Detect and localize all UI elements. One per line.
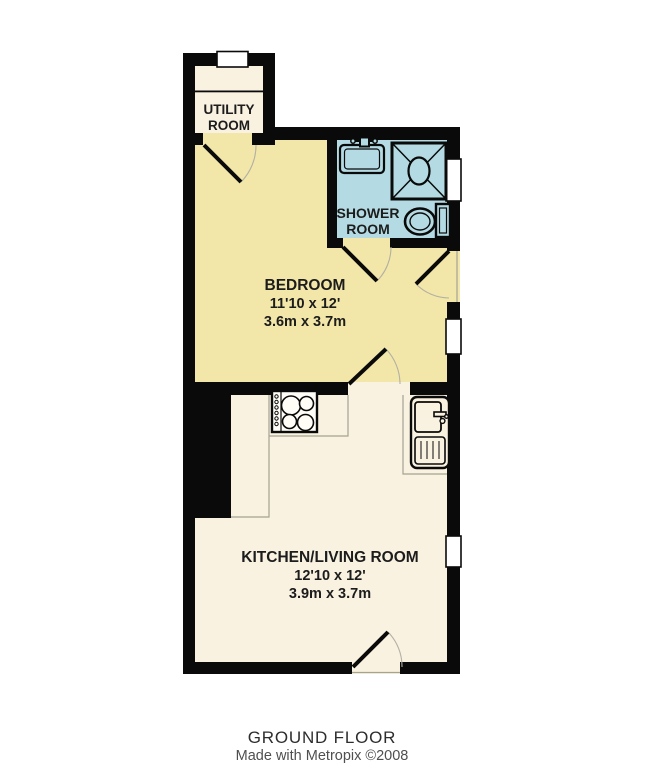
window-utility [217,52,248,68]
wall-bedroom-kitchen-east [410,382,447,395]
wall-shower-south-east [390,238,460,248]
kitchen-label: KITCHEN/LIVING ROOM [241,549,418,566]
floor-plan: UTILITY ROOM SHOWER ROOM BEDROOM 11'10 x… [0,0,645,767]
window-shower-room [446,159,461,201]
caption: GROUND FLOOR Made with Metropix ©2008 [236,728,409,764]
wall-shower-west [327,140,337,248]
wall-bottom [183,662,460,674]
window-kitchen [446,536,461,567]
kitchen-floor [195,395,447,662]
kitchen-dim-metric: 3.9m x 3.7m [289,586,371,602]
bedroom-label: BEDROOM [265,277,346,294]
bedroom-dim-metric: 3.6m x 3.7m [264,314,346,330]
opening-shower [343,238,390,248]
opening-utility [203,133,252,145]
utility-divider-line [195,91,263,93]
opening-entrance [447,251,460,302]
opening-bedroom-kitchen [348,382,410,395]
credit-line: Made with Metropix ©2008 [236,748,409,764]
utility-room-label-line1: UTILITY [204,102,255,117]
utility-room-label-line2: ROOM [208,118,250,133]
shower-cubicle [392,143,446,199]
wall-left [183,53,195,674]
bedroom-dim-imperial: 11'10 x 12' [270,296,341,312]
floorplan-page: UTILITY ROOM SHOWER ROOM BEDROOM 11'10 x… [0,0,645,767]
wall-shower-south-stub [327,238,343,248]
kitchen-sink [411,397,449,468]
kitchen-dim-imperial: 12'10 x 12' [294,568,365,584]
window-bedroom [446,319,461,354]
shower-room-label-line2: ROOM [346,221,390,237]
wall-utility-bottom-left [195,133,203,145]
wall-kitchen-chimney-mass [195,382,231,518]
shower-room-label-line1: SHOWER [337,205,400,221]
hob [272,391,317,432]
floor-title: GROUND FLOOR [248,728,396,747]
